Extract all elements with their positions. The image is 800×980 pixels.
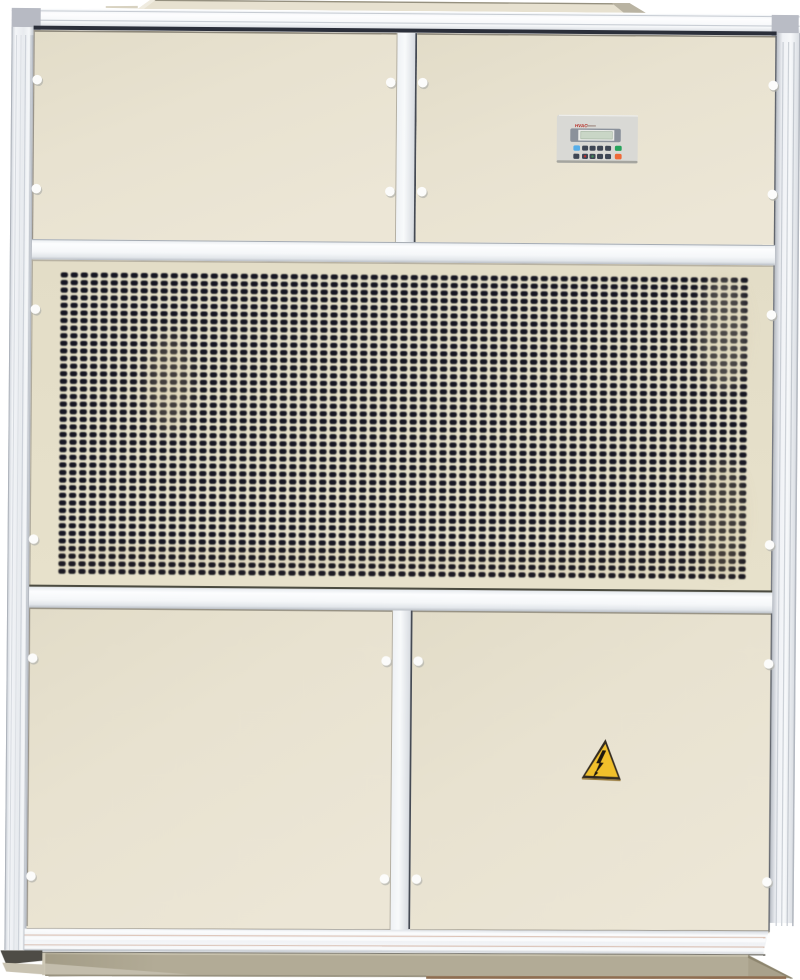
svg-text:HVAC: HVAC: [575, 123, 588, 128]
